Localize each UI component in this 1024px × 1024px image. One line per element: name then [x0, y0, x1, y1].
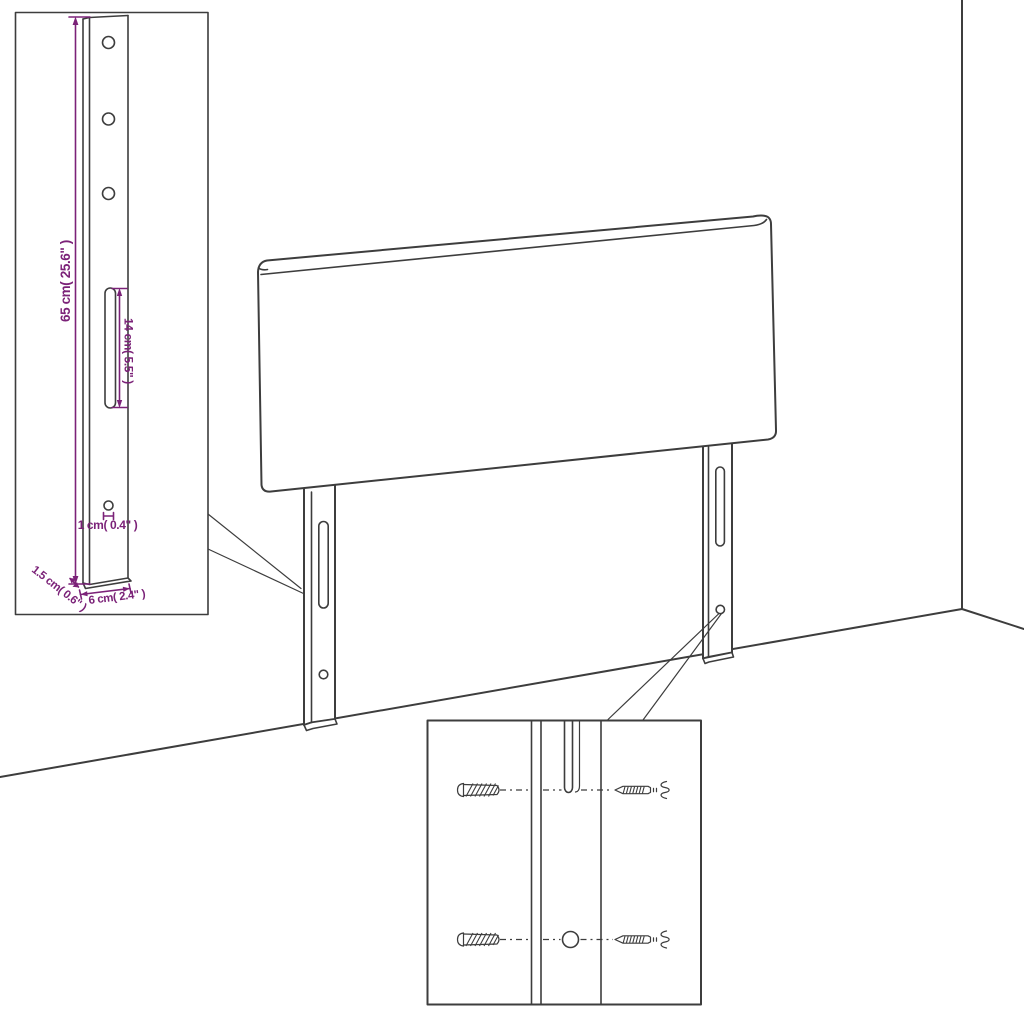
bracket-detail-box: 65 cm( 25.6" ) 14 cm( 5.5" ) 1 cm( 0.4" … [16, 13, 209, 615]
leg-details [312, 447, 725, 723]
callout-lines [208, 514, 722, 720]
slot-dimension-label: 14 cm( 5.5" ) [122, 318, 136, 384]
headboard-panel [258, 216, 776, 492]
bracket-callout-line-1 [208, 514, 301, 589]
hole-dimension-label: 1 cm( 0.4" ) [78, 518, 138, 532]
headboard-assembly-diagram: 65 cm( 25.6" ) 14 cm( 5.5" ) 1 cm( 0.4" … [0, 0, 1024, 1024]
floor-line-right [962, 609, 1024, 629]
panel-face [258, 216, 776, 492]
bracket-callout-line-2 [208, 549, 304, 594]
diagram-canvas: 65 cm( 25.6" ) 14 cm( 5.5" ) 1 cm( 0.4" … [0, 0, 1024, 1024]
height-dimension-label: 65 cm( 25.6" ) [58, 240, 73, 322]
mounting-detail-box [428, 721, 702, 1005]
screwhole-callout-line-2 [643, 614, 722, 721]
screwhole-callout-line-1 [608, 614, 719, 720]
